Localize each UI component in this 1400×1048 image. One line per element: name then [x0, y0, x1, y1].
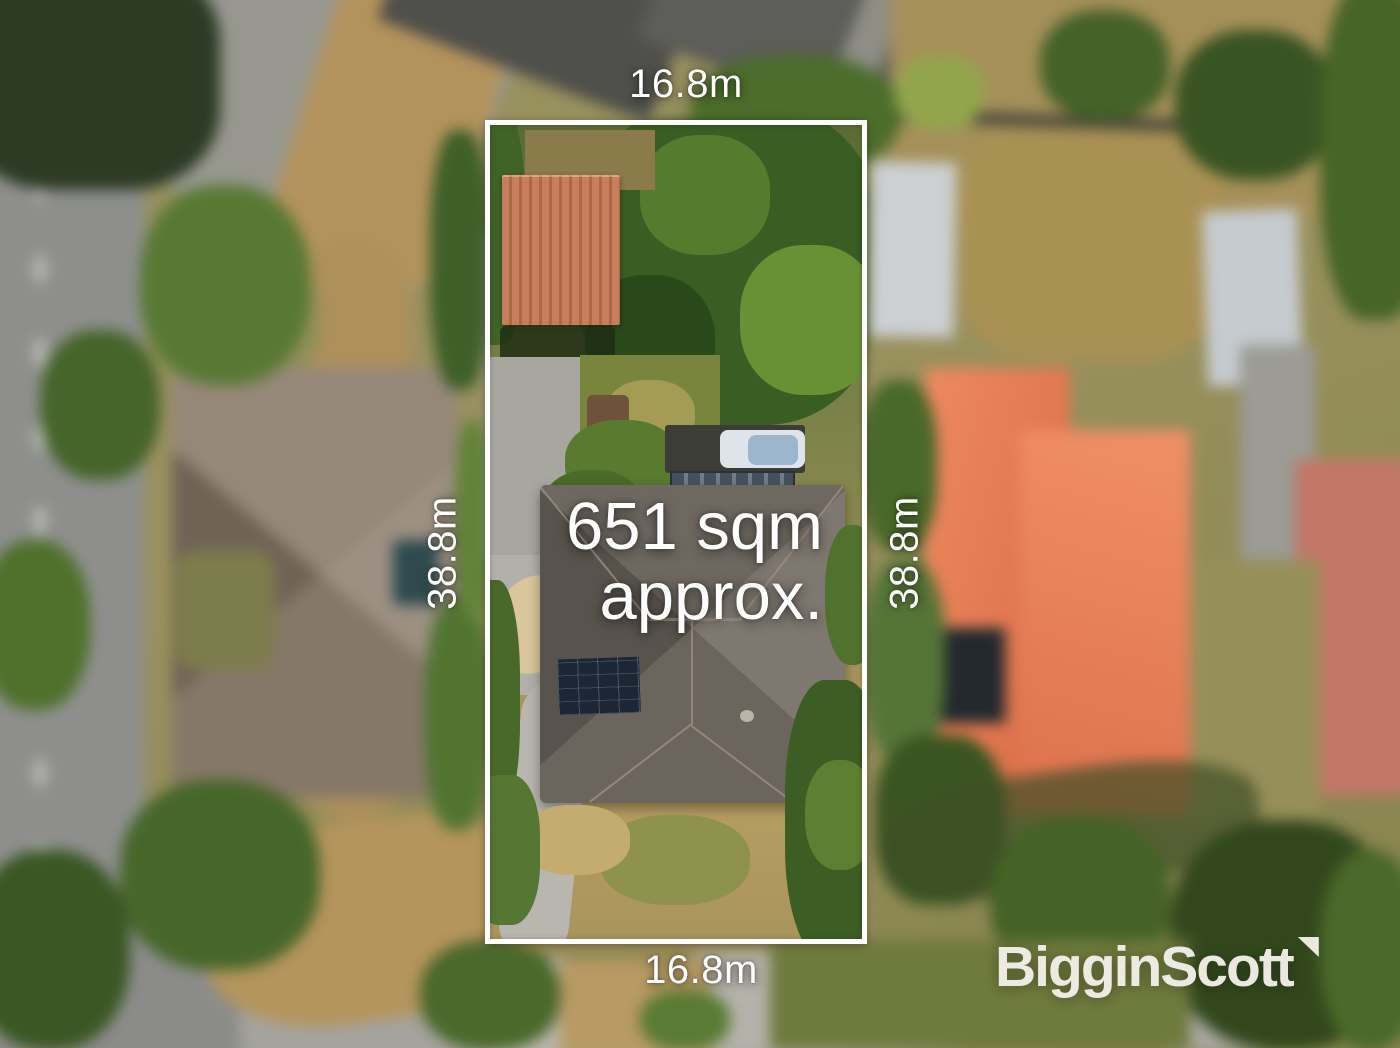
- dimension-label-top: 16.8m: [495, 62, 877, 107]
- tree-canopy-dark: [1175, 30, 1335, 180]
- white-shed-roof: [868, 161, 956, 337]
- dimension-label-left: 38.8m: [421, 496, 466, 610]
- dimension-label-right: 38.8m: [883, 496, 928, 610]
- tree-canopy: [430, 130, 490, 390]
- agency-logo: BigginScott: [995, 934, 1319, 1000]
- agency-logo-text: BigginScott: [995, 935, 1293, 999]
- tree-canopy: [1320, 0, 1400, 320]
- shrub: [640, 990, 730, 1048]
- agency-logo-flag-icon: [1298, 937, 1319, 957]
- dry-grass-right: [960, 120, 1220, 360]
- tree-canopy: [140, 185, 310, 385]
- road-centerline: [36, 150, 44, 870]
- left-house-courtyard: [175, 550, 275, 670]
- aerial-photo: 16.8m 16.8m 38.8m 38.8m 651 sqm approx. …: [0, 0, 1400, 1048]
- tree-canopy-dark: [0, 850, 130, 1048]
- tree-canopy-dark: [0, 0, 220, 190]
- shrub-yellow-green: [895, 55, 985, 130]
- area-label-line2: approx.: [535, 562, 823, 632]
- area-label: 651 sqm approx.: [535, 492, 823, 631]
- tree-canopy: [1320, 850, 1400, 1048]
- tree-canopy: [425, 600, 490, 830]
- tree-canopy: [1040, 10, 1170, 120]
- tree-canopy: [0, 540, 90, 710]
- area-label-line1: 651 sqm: [535, 492, 823, 562]
- right-neighbor-house-wing: [1020, 430, 1190, 815]
- dimension-label-bottom: 16.8m: [510, 948, 892, 993]
- tree-canopy: [40, 330, 160, 480]
- tree-canopy: [120, 780, 320, 970]
